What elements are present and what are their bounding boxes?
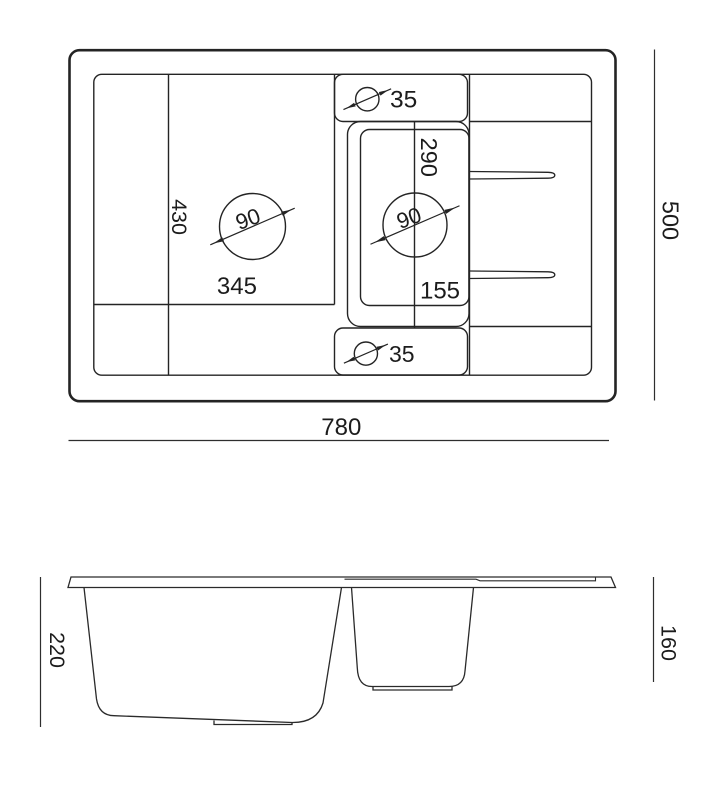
svg-text:155: 155 xyxy=(420,278,460,305)
svg-text:220: 220 xyxy=(45,632,69,668)
svg-text:345: 345 xyxy=(217,273,257,300)
svg-text:290: 290 xyxy=(416,138,442,177)
svg-text:430: 430 xyxy=(167,199,191,235)
svg-text:35: 35 xyxy=(390,87,417,114)
svg-text:500: 500 xyxy=(658,201,684,240)
svg-text:35: 35 xyxy=(389,341,415,367)
svg-text:780: 780 xyxy=(321,414,361,441)
svg-text:160: 160 xyxy=(656,625,680,661)
